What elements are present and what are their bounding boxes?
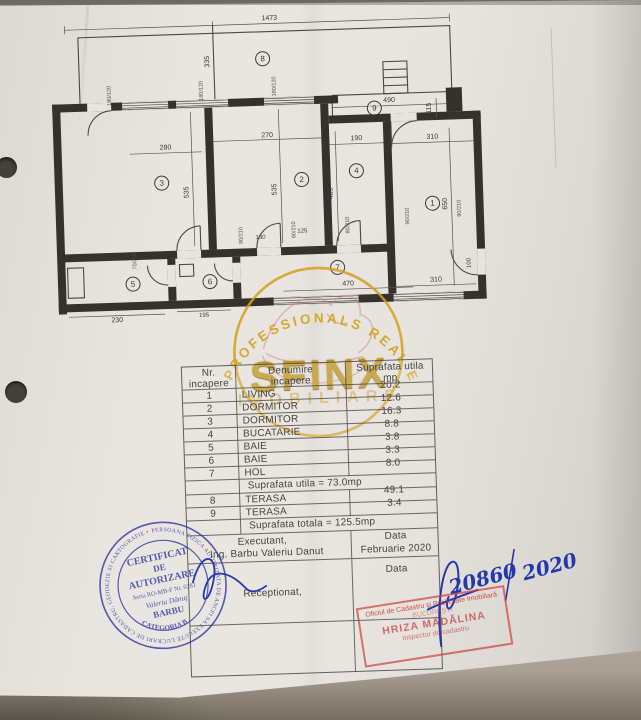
receptionat-label: Receptionat, bbox=[243, 585, 352, 600]
page-edge-shadow bbox=[591, 0, 641, 680]
room-area-cell: 3.4 bbox=[350, 495, 438, 511]
photo-background: 8932415671473335490115280270190310535535… bbox=[0, 0, 641, 720]
column-header: Nr.incapere bbox=[182, 366, 237, 391]
punch-hole bbox=[5, 381, 27, 403]
room-area-cell: 8.0 bbox=[349, 455, 437, 471]
plan-walls bbox=[52, 87, 487, 315]
document-content: 8932415671473335490115280270190310535535… bbox=[0, 0, 641, 720]
date-cell: DataFebruarie 2020 bbox=[351, 528, 440, 558]
svg-text:PERSOANA FIZICA AUTORIZATA DE: PERSOANA FIZICA AUTORIZATA DE ANCPI SA E… bbox=[94, 517, 232, 655]
handwritten-year: 2020 bbox=[519, 548, 579, 586]
data-label: Data bbox=[352, 562, 440, 576]
stamp-ring-text: PERSOANA FIZICA AUTORIZATA DE ANCPI SA E… bbox=[94, 517, 232, 655]
certification-stamp: PERSOANA FIZICA AUTORIZATA DE ANCPI SA E… bbox=[86, 508, 241, 663]
photo-top-edge bbox=[0, 0, 641, 5]
date-value: Februarie 2020 bbox=[352, 542, 440, 556]
floor-plan bbox=[29, 0, 570, 362]
plan-room-dimension-lines bbox=[62, 97, 479, 317]
document-page: 8932415671473335490115280270190310535535… bbox=[0, 0, 641, 720]
stamp-title2: DE bbox=[152, 562, 166, 574]
data-label: Data bbox=[351, 529, 439, 543]
